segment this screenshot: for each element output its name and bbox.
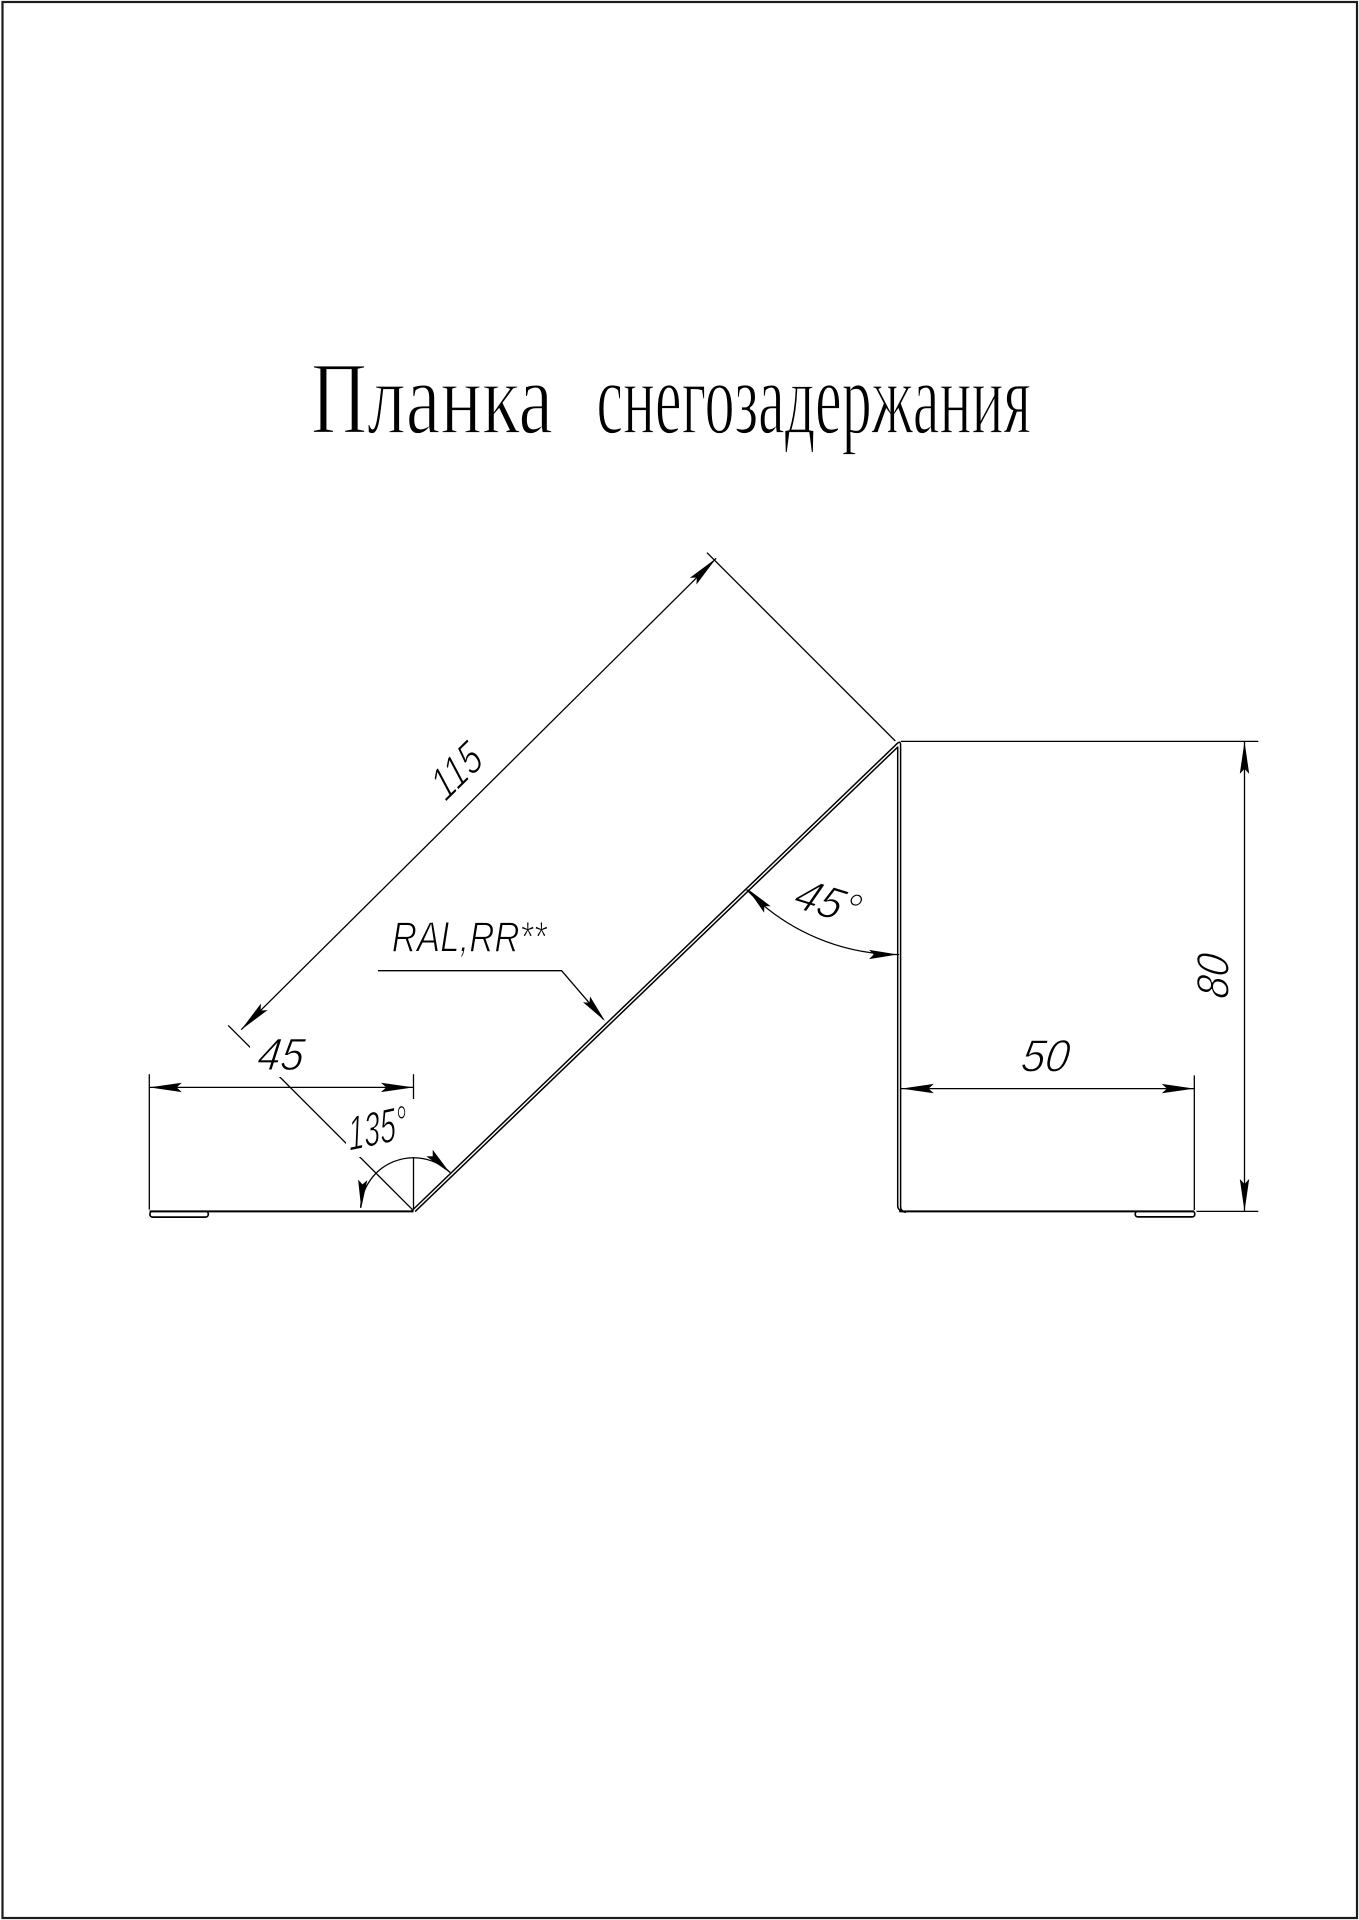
svg-text:115: 115 (422, 732, 491, 811)
svg-text:50: 50 (1018, 1031, 1074, 1082)
svg-text:80: 80 (1188, 950, 1239, 1002)
svg-text:45: 45 (255, 1029, 309, 1080)
svg-text:45°: 45° (787, 869, 870, 934)
svg-text:снегозадержания: снегозадержания (597, 342, 1032, 456)
svg-text:Планка: Планка (311, 342, 553, 456)
svg-text:RAL,RR**: RAL,RR** (392, 914, 548, 961)
